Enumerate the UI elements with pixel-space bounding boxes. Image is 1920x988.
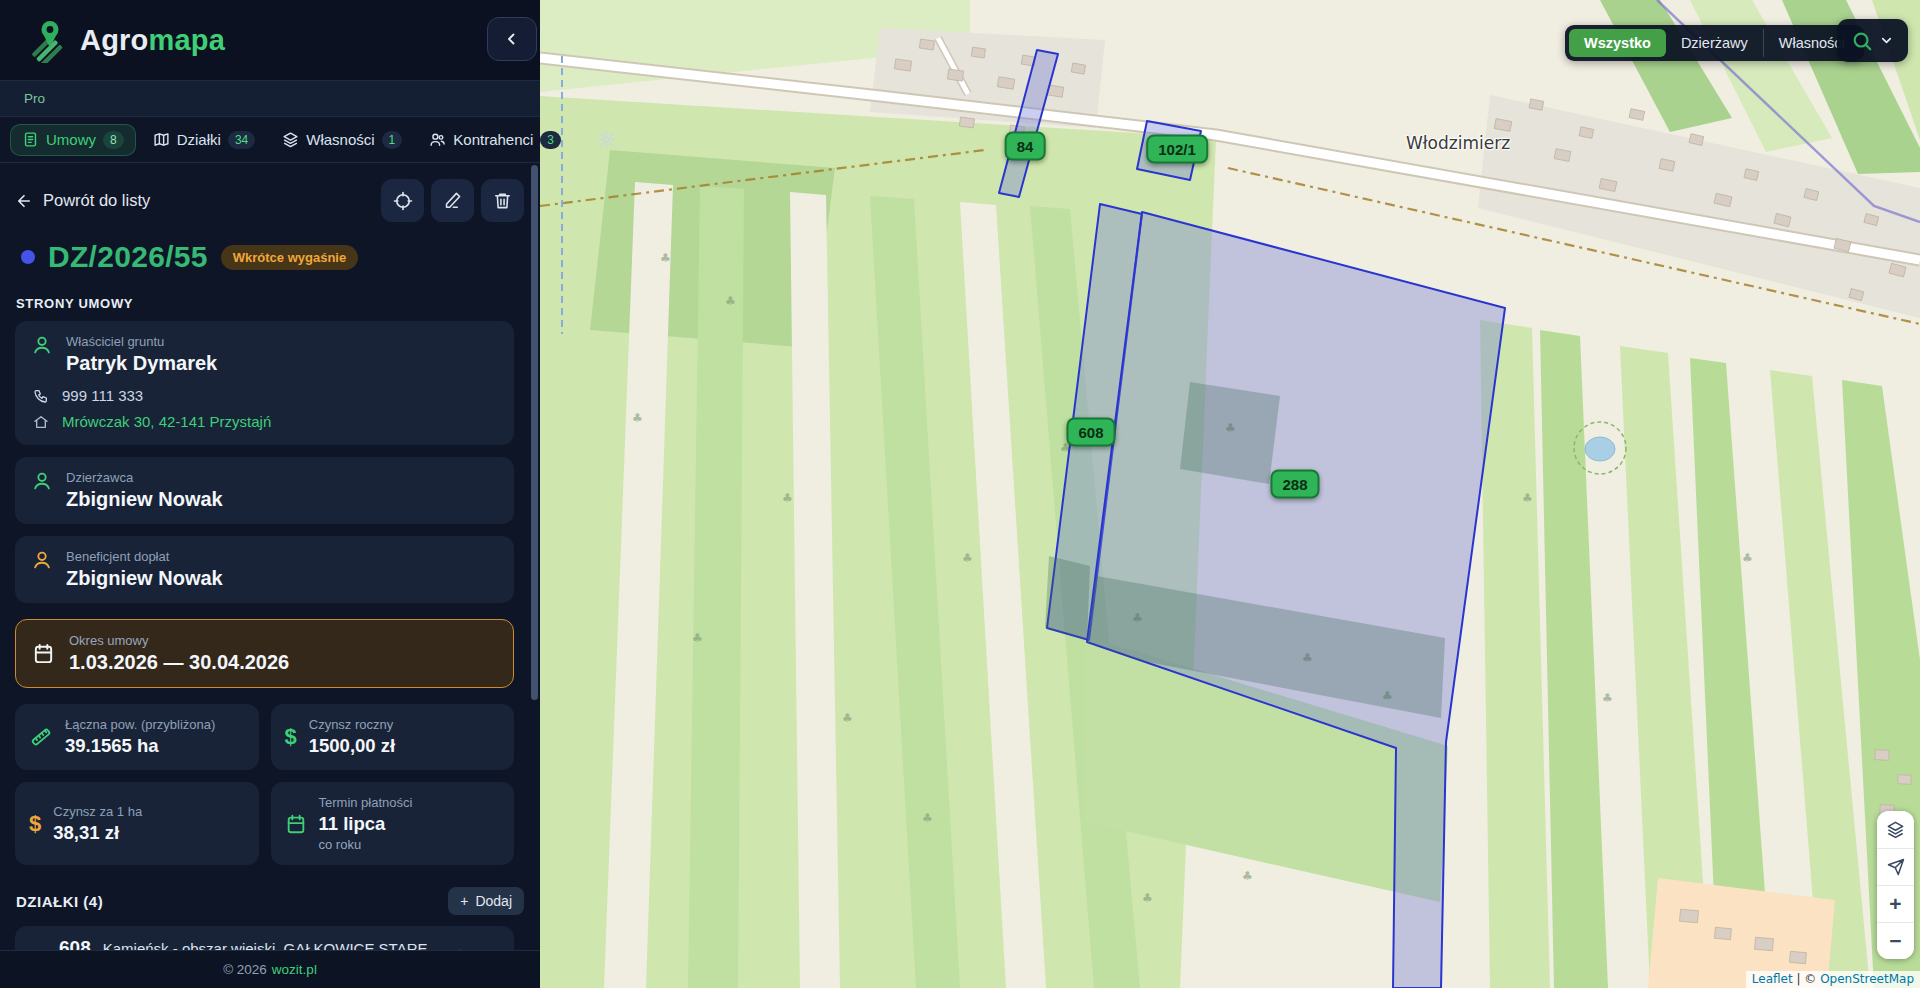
brand-name: Agromapa bbox=[80, 24, 225, 57]
tab-badge: 34 bbox=[228, 131, 255, 149]
edit-contract-button[interactable] bbox=[431, 179, 474, 222]
tab-kontrahenci[interactable]: Kontrahenci 3 bbox=[419, 124, 571, 156]
arrow-left-icon bbox=[15, 192, 33, 210]
map-search-button[interactable] bbox=[1837, 19, 1908, 62]
locate-contract-button[interactable] bbox=[381, 179, 424, 222]
map-icon bbox=[153, 131, 170, 148]
parcel-list-item[interactable]: 608 Kamieńsk - obszar wiejski, GAŁKOWICE… bbox=[15, 926, 514, 950]
parcel-marker-102-1[interactable]: 102/1 bbox=[1146, 135, 1208, 164]
svg-text:♣: ♣ bbox=[660, 251, 671, 265]
layers-icon bbox=[282, 131, 299, 148]
user-icon bbox=[31, 334, 53, 356]
svg-text:♣: ♣ bbox=[1522, 491, 1533, 505]
calendar-icon bbox=[32, 642, 55, 665]
main-nav: Umowy 8 Działki 34 Własności 1 Kontrahen… bbox=[0, 117, 540, 163]
osm-link[interactable]: OpenStreetMap bbox=[1820, 972, 1914, 986]
tab-badge: 1 bbox=[382, 131, 403, 149]
trash-icon bbox=[493, 191, 512, 210]
period-label: Okres umowy bbox=[69, 633, 289, 648]
sidebar: Agromapa Pro Umowy 8 Działki 34 Własnośc bbox=[0, 0, 540, 988]
tab-label: Działki bbox=[177, 131, 221, 148]
calendar-icon bbox=[285, 813, 307, 835]
map-controls: + − bbox=[1877, 811, 1914, 959]
dollar-icon: $ bbox=[29, 813, 41, 835]
party-phone: 999 111 333 bbox=[33, 387, 498, 404]
parcels-section-header: DZIAŁKI (4) bbox=[16, 893, 103, 910]
period-card: Okres umowy 1.03.2026 — 30.04.2026 bbox=[15, 619, 514, 688]
plan-label: Pro bbox=[24, 91, 45, 106]
users-icon bbox=[429, 131, 446, 148]
parcel-marker-84[interactable]: 84 bbox=[1005, 132, 1046, 161]
plus-icon: + bbox=[460, 893, 468, 909]
dollar-icon: $ bbox=[285, 726, 297, 748]
stat-payment-due: Termin płatności 11 lipca co roku bbox=[271, 782, 515, 865]
tab-badge: 3 bbox=[540, 131, 561, 149]
party-name: Zbigniew Nowak bbox=[66, 488, 223, 511]
svg-text:♣: ♣ bbox=[1225, 421, 1236, 435]
crosshair-icon[interactable] bbox=[450, 949, 469, 951]
svg-text:♣: ♣ bbox=[1382, 689, 1393, 703]
filter-dzierzawy[interactable]: Dzierżawy bbox=[1666, 29, 1763, 57]
stat-total-area: Łączna pow. (przybliżona) 39.1565 ha bbox=[15, 704, 259, 770]
party-name: Patryk Dymarek bbox=[66, 352, 217, 375]
leaflet-link[interactable]: Leaflet bbox=[1752, 972, 1793, 986]
period-value: 1.03.2026 — 30.04.2026 bbox=[69, 651, 289, 674]
map-base-tiles: ♣♣♣ ♣♣♣ ♣♣♣ ♣♣♣ ♣♣ ♣♣♣♣ bbox=[540, 0, 1920, 988]
parties-section-header: STRONY UMOWY bbox=[16, 296, 514, 311]
svg-text:♣: ♣ bbox=[1302, 651, 1313, 665]
place-label-wlodzimierz: Włodzimierz bbox=[1406, 133, 1510, 153]
tab-badge: 8 bbox=[103, 131, 124, 149]
tab-umowy[interactable]: Umowy 8 bbox=[10, 124, 136, 156]
svg-text:♣: ♣ bbox=[1142, 891, 1153, 905]
ruler-icon bbox=[29, 725, 53, 749]
party-card-beneficiary: Beneficjent dopłat Zbigniew Nowak bbox=[15, 536, 514, 603]
home-icon bbox=[33, 414, 49, 430]
tab-label: Kontrahenci bbox=[453, 131, 533, 148]
zoom-out-button[interactable]: − bbox=[1877, 922, 1914, 959]
search-icon bbox=[1851, 30, 1873, 52]
locate-me-button[interactable] bbox=[1877, 848, 1914, 885]
party-name: Zbigniew Nowak bbox=[66, 567, 223, 590]
tab-wlasnosci[interactable]: Własności 1 bbox=[272, 124, 412, 156]
gear-icon bbox=[597, 130, 616, 149]
party-role: Dzierżawca bbox=[66, 470, 223, 485]
sidebar-header: Agromapa bbox=[0, 0, 540, 80]
settings-button[interactable] bbox=[593, 126, 620, 153]
stat-annual-rent: $ Czynsz roczny 1500,00 zł bbox=[271, 704, 515, 770]
status-badge: Wkrótce wygaśnie bbox=[221, 245, 358, 270]
map-canvas[interactable]: ♣♣♣ ♣♣♣ ♣♣♣ ♣♣♣ ♣♣ ♣♣♣♣ bbox=[540, 0, 1920, 988]
contract-number: DZ/2026/55 bbox=[48, 240, 208, 274]
add-parcel-button[interactable]: + Dodaj bbox=[448, 887, 524, 915]
svg-text:♣: ♣ bbox=[1132, 611, 1143, 625]
chevron-left-icon bbox=[503, 30, 521, 48]
sidebar-collapse-button[interactable] bbox=[487, 17, 537, 61]
zoom-in-button[interactable]: + bbox=[1877, 885, 1914, 922]
document-icon bbox=[22, 131, 39, 148]
user-icon bbox=[31, 470, 53, 492]
layers-control-button[interactable] bbox=[1877, 811, 1914, 848]
parcel-marker-288[interactable]: 288 bbox=[1270, 470, 1319, 499]
agromapa-app: Agromapa Pro Umowy 8 Działki 34 Własnośc bbox=[0, 0, 1920, 988]
back-to-list-button[interactable]: Powrót do listy bbox=[15, 191, 150, 210]
map-pin-icon bbox=[29, 949, 47, 950]
svg-text:♣: ♣ bbox=[782, 491, 793, 505]
filter-wszystko[interactable]: Wszystko bbox=[1569, 29, 1666, 57]
svg-text:♣: ♣ bbox=[725, 294, 736, 308]
sidebar-scrollbar[interactable] bbox=[531, 165, 538, 700]
svg-text:♣: ♣ bbox=[632, 411, 643, 425]
tab-dzialki[interactable]: Działki 34 bbox=[143, 124, 266, 156]
svg-text:♣: ♣ bbox=[1742, 551, 1753, 565]
tab-label: Umowy bbox=[46, 131, 96, 148]
back-label: Powrót do listy bbox=[43, 191, 150, 210]
svg-text:♣: ♣ bbox=[922, 811, 933, 825]
plan-bar: Pro bbox=[0, 80, 540, 117]
svg-text:♣: ♣ bbox=[962, 551, 973, 565]
map-attribution: Leaflet | © OpenStreetMap bbox=[1746, 971, 1920, 988]
parcel-marker-608[interactable]: 608 bbox=[1066, 418, 1115, 447]
phone-icon bbox=[33, 388, 49, 404]
party-card-tenant: Dzierżawca Zbigniew Nowak bbox=[15, 457, 514, 524]
svg-text:♣: ♣ bbox=[842, 711, 853, 725]
contract-color-dot bbox=[21, 250, 35, 264]
delete-contract-button[interactable] bbox=[481, 179, 524, 222]
parcel-location: Kamieńsk - obszar wiejski, GAŁKOWICE STA… bbox=[103, 940, 428, 950]
party-card-owner: Właściciel gruntu Patryk Dymarek 999 111… bbox=[15, 321, 514, 445]
agromapa-pin-icon bbox=[24, 17, 70, 63]
party-role: Właściciel gruntu bbox=[66, 334, 217, 349]
chevron-down-icon bbox=[1879, 33, 1894, 48]
pencil-icon bbox=[443, 191, 462, 210]
sidebar-footer: © 2026 wozit.pl bbox=[0, 950, 540, 988]
stat-rent-per-ha: $ Czynsz za 1 ha 38,31 zł bbox=[15, 782, 259, 865]
party-role: Beneficjent dopłat bbox=[66, 549, 223, 564]
user-icon bbox=[31, 549, 53, 571]
locate-arrow-icon bbox=[1887, 858, 1905, 876]
svg-text:♣: ♣ bbox=[1602, 691, 1613, 705]
svg-text:♣: ♣ bbox=[1242, 869, 1253, 883]
crosshair-icon bbox=[393, 191, 413, 211]
svg-text:♣: ♣ bbox=[692, 631, 703, 645]
tab-label: Własności bbox=[306, 131, 374, 148]
layers-icon bbox=[1886, 820, 1905, 839]
map-filter-control: Wszystko Dzierżawy Własności bbox=[1565, 25, 1864, 61]
party-address[interactable]: Mrówczak 30, 42-141 Przystajń bbox=[33, 413, 498, 430]
wozit-link[interactable]: wozit.pl bbox=[272, 962, 317, 977]
parcel-number: 608 bbox=[59, 937, 91, 950]
brand-logo: Agromapa bbox=[24, 17, 225, 63]
contract-detail: Powrót do listy DZ/2026/55 W bbox=[0, 163, 540, 950]
